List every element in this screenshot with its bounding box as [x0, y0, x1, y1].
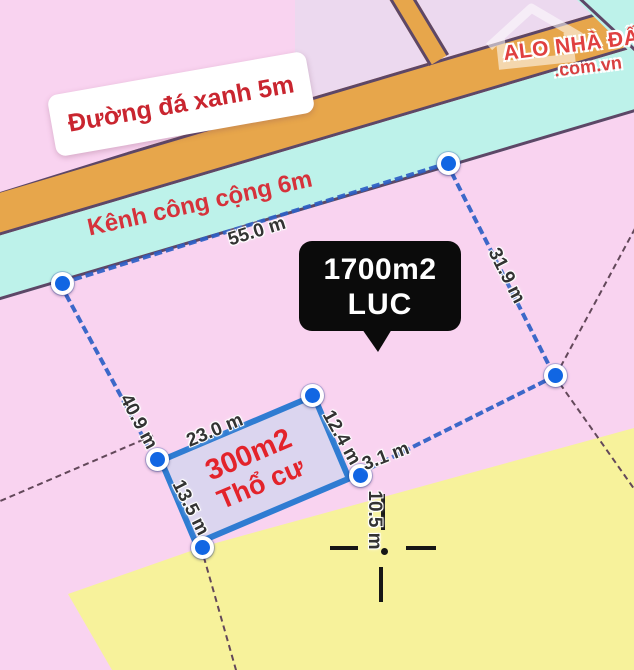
measurement-label-depth: 10.5 m: [363, 490, 385, 549]
parcel-vertex-dot: [437, 152, 460, 175]
measurement-label-left: 40.9 m: [114, 391, 161, 454]
parcel-vertex-dot: [146, 448, 169, 471]
measurement-label-right: 31.9 m: [483, 245, 529, 308]
parcel-vertex-dot: [191, 536, 214, 559]
crosshair-icon: [379, 567, 383, 602]
parcel-vertex-dot: [301, 384, 324, 407]
cadastral-line: [0, 435, 153, 502]
parcel-vertex-dot: [544, 364, 567, 387]
measurement-label-connector: 3.1 m: [359, 438, 412, 476]
cadastral-line: [555, 228, 634, 376]
crosshair-icon: [330, 546, 358, 550]
callout-area: 1700m2: [323, 251, 436, 289]
area-callout: 1700m2 LUC: [299, 241, 461, 331]
crosshair-icon: [406, 546, 436, 550]
land-plot-map: 300m2 Thổ cư 55.0 m 31.9 m 40.9 m 23.0 m…: [0, 0, 634, 670]
callout-land-type: LUC: [348, 288, 413, 321]
callout-pointer: [362, 329, 392, 352]
parcel-vertex-dot: [51, 272, 74, 295]
